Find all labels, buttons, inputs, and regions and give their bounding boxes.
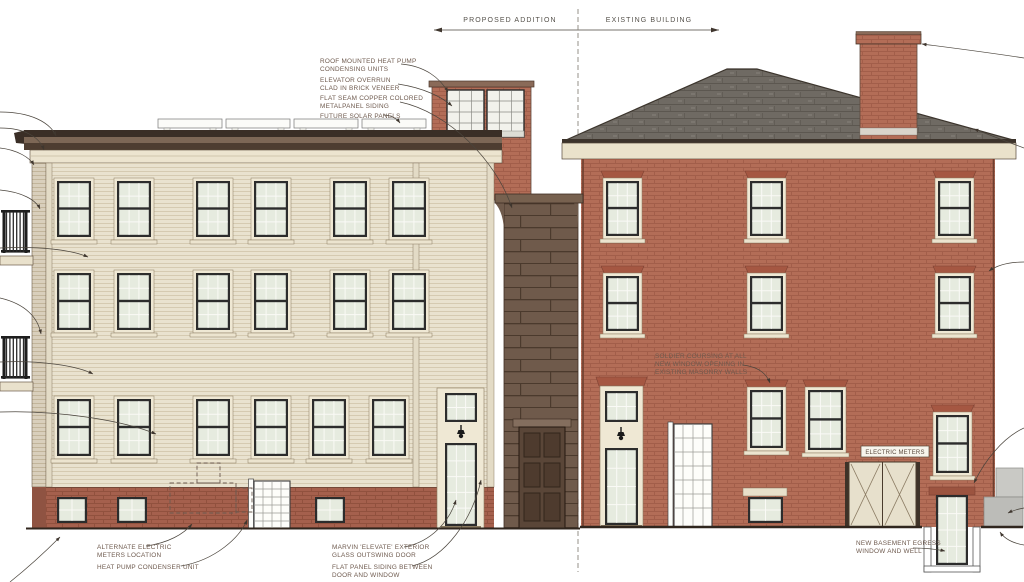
leader-line [10, 537, 60, 582]
basement-window [748, 497, 783, 523]
callout-copper-siding-1: FLAT SEAM COPPER COLORED [320, 95, 423, 102]
white-outswing-door [668, 422, 712, 527]
window [386, 178, 432, 244]
window [248, 178, 294, 244]
glass-entry-door [445, 443, 477, 526]
window [306, 396, 352, 463]
callout-elevator-overrun-2: CLAD IN BRICK VENEER [320, 85, 400, 92]
window [51, 178, 97, 244]
callout-alt-electric-meters-2: METERS LOCATION [97, 552, 161, 559]
connector-door [513, 419, 571, 528]
elevation-svg: PROPOSED ADDITION EXISTING BUILDING [0, 0, 1024, 582]
callout-basement-egress-1: NEW BASEMENT EGRESS [856, 540, 941, 547]
hipped-roof [566, 69, 1013, 140]
electric-meters-label: ELECTRIC METERS [865, 450, 924, 456]
dimension-arrow-left [434, 28, 442, 33]
transom-window [445, 393, 477, 422]
window [930, 405, 975, 480]
elevation-drawing: PROPOSED ADDITION EXISTING BUILDING [0, 0, 1024, 582]
callout-flat-panel-siding-2: DOOR AND WINDOW [332, 572, 400, 579]
existing-building-roof [566, 32, 1013, 141]
window [51, 396, 97, 463]
callout-flat-panel-siding-1: FLAT PANEL SIDING BETWEEN [332, 564, 433, 571]
window [111, 178, 157, 244]
callout-heat-pump-condenser: HEAT PUMP CONDENSER UNIT [97, 564, 199, 571]
basement-window [117, 497, 147, 523]
leader-line [922, 44, 1024, 58]
copper-connector [495, 194, 583, 528]
basement-window [315, 497, 345, 523]
callout-marvin-door-2: GLASS OUTSWING DOOR [332, 552, 416, 559]
base-return [32, 487, 46, 528]
addition-cornice [30, 150, 502, 163]
callout-roof-heat-pump-1: ROOF MOUNTED HEAT PUMP [320, 58, 417, 65]
addition-roof-band [24, 130, 502, 137]
window [248, 270, 294, 337]
callout-basement-egress-2: WINDOW AND WELL [856, 548, 922, 555]
window [190, 396, 236, 463]
basement-window [57, 497, 87, 523]
callout-solar-panels: FUTURE SOLAR PANELS [320, 113, 401, 120]
callout-alt-electric-meters-1: ALTERNATE ELECTRIC [97, 544, 172, 551]
window [600, 171, 645, 243]
leader-line [1000, 532, 1024, 545]
window [327, 270, 373, 337]
glass-entry-door [605, 448, 638, 525]
window [111, 396, 157, 463]
side-balcony [0, 336, 33, 391]
window [932, 266, 977, 338]
window [327, 178, 373, 244]
window [51, 270, 97, 337]
callout-soldier-coursing-3: EXISTING MASONRY WALLS [655, 369, 747, 376]
window [802, 380, 849, 457]
window [386, 270, 432, 337]
callout-soldier-coursing-1: SOLDIER COURSING AT ALL [655, 353, 747, 360]
window [744, 380, 789, 455]
window [744, 171, 789, 243]
callout-roof-heat-pump-2: CONDENSING UNITS [320, 66, 388, 73]
white-outswing-door [249, 479, 291, 529]
window [111, 270, 157, 337]
window [190, 270, 236, 337]
window [366, 396, 412, 463]
existing-building-label: EXISTING BUILDING [606, 17, 692, 24]
dimension-arrow-right [711, 28, 719, 33]
future-solar-panels [158, 119, 426, 131]
window [600, 266, 645, 338]
window [936, 495, 968, 565]
proposed-addition-label: PROPOSED ADDITION [463, 17, 556, 24]
window [190, 178, 236, 244]
window [932, 171, 977, 243]
callout-elevator-overrun-1: ELEVATOR OVERRUN [320, 77, 391, 84]
window [248, 396, 294, 463]
transom-window [605, 391, 638, 422]
callout-marvin-door-1: MARVIN 'ELEVATE' EXTERIOR [332, 544, 430, 551]
leader-line [0, 148, 34, 165]
chimney [856, 32, 921, 141]
addition-side-return [32, 163, 46, 487]
callout-copper-siding-2: METALPANEL SIDING [320, 103, 389, 110]
callout-soldier-coursing-2: NEW WINDOW OPENING IN [655, 361, 745, 368]
window [744, 266, 789, 338]
side-balcony [0, 210, 33, 265]
existing-cornice [562, 143, 1016, 159]
